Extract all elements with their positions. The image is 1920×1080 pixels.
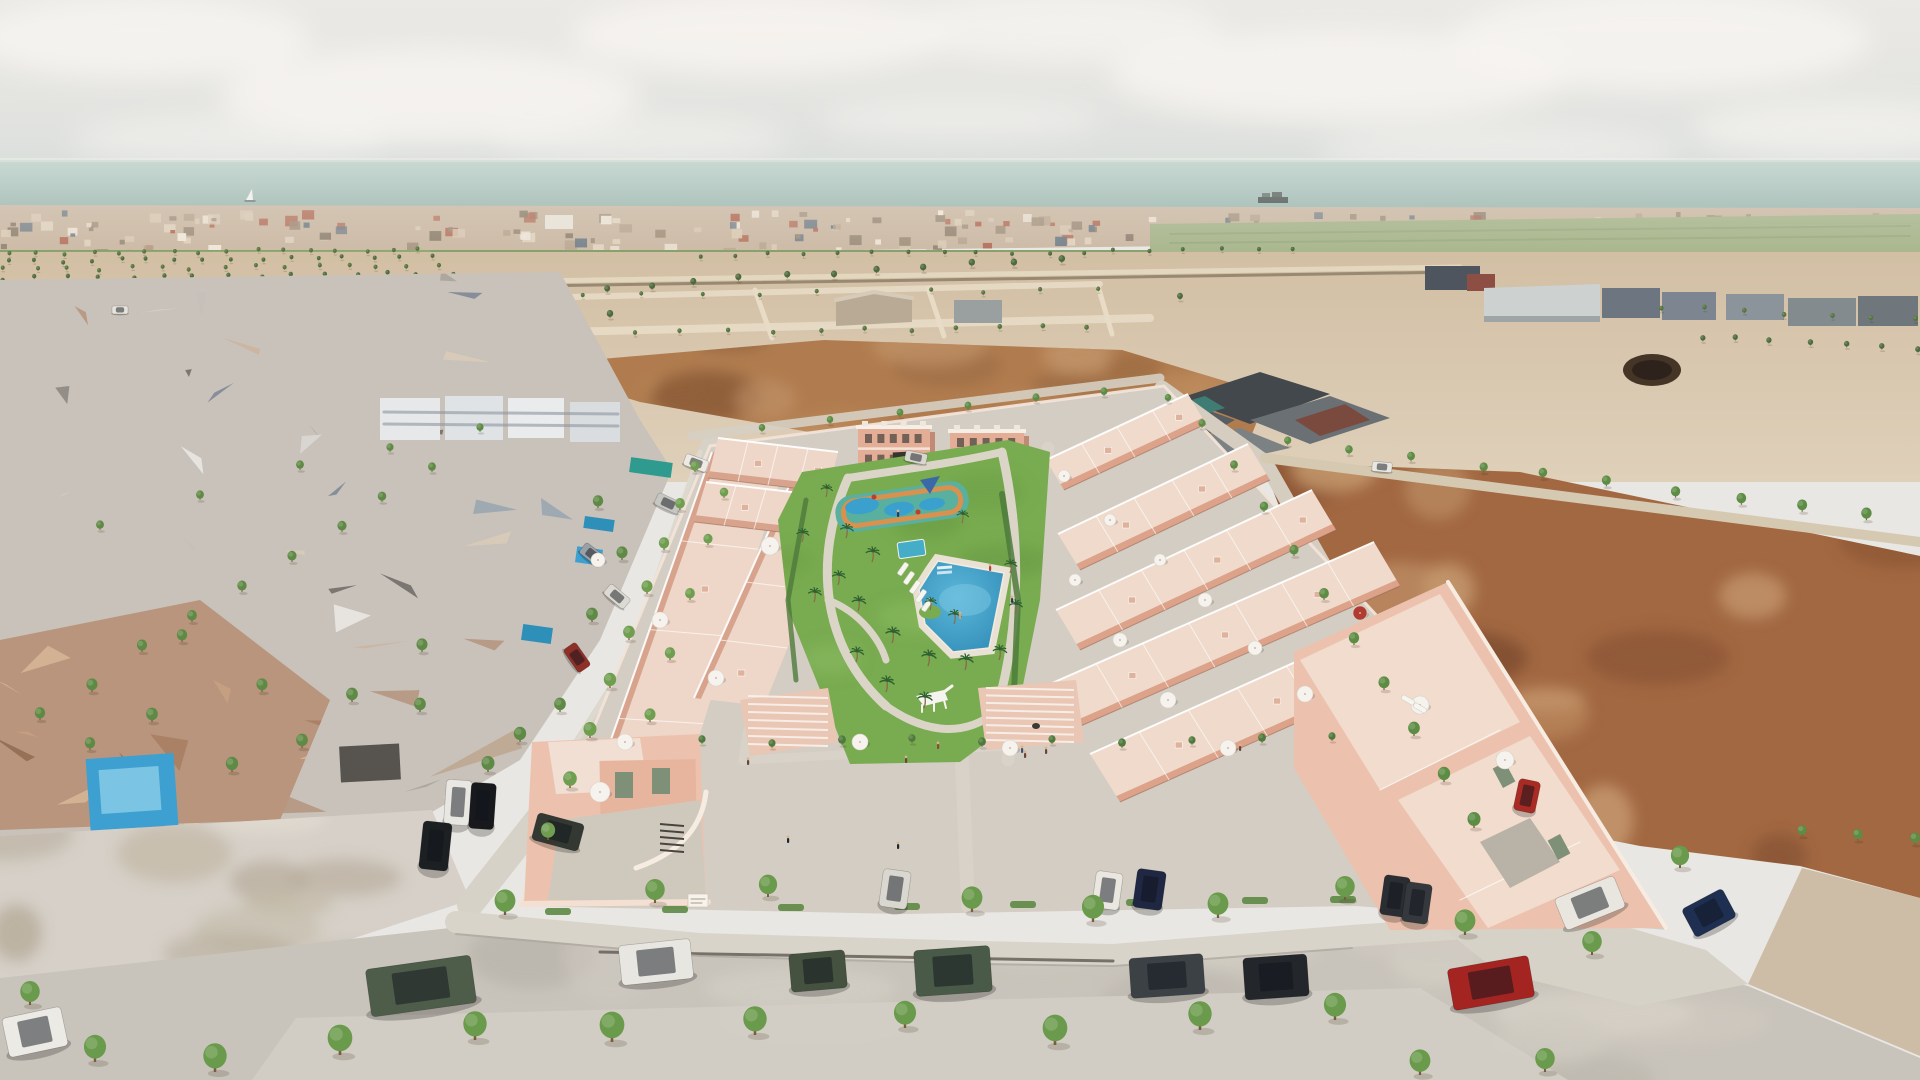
gray-warehouse	[954, 300, 1002, 323]
window-panel	[652, 768, 670, 794]
car	[910, 945, 997, 1005]
kids-pool	[897, 539, 926, 559]
entrance-plaque	[688, 894, 708, 907]
car	[1239, 954, 1313, 1008]
play-equipment	[872, 495, 877, 500]
corner-front-wall	[524, 902, 708, 904]
warehouse-gray-5	[1858, 296, 1918, 326]
warehouse-side	[1484, 316, 1600, 322]
car	[1125, 953, 1209, 1005]
existing-pool-shallow	[99, 766, 162, 814]
apartment-block-existing-4	[570, 402, 620, 442]
warehouse-gray-4	[1788, 298, 1856, 326]
bbq-grill	[1032, 723, 1040, 729]
window-band	[384, 412, 618, 414]
pool-highlight	[939, 584, 991, 616]
window-panel	[615, 772, 633, 798]
apartment-block-existing-2	[445, 396, 503, 440]
warehouse-gray-1	[1602, 288, 1660, 318]
car	[786, 949, 851, 999]
aerial-render-scene	[0, 0, 1920, 1080]
apartment-block-existing-1	[380, 398, 440, 440]
car	[111, 306, 129, 315]
car	[467, 782, 498, 838]
aerial-render-viewport: Bird's-eye 3D visualization: rows of sal…	[0, 0, 1920, 1080]
window-band	[384, 424, 618, 426]
warehouse-gray-3	[1726, 294, 1784, 320]
apartment-block-existing-3	[508, 398, 564, 438]
play-equipment	[916, 510, 921, 515]
dark-shed	[339, 743, 401, 782]
round-tank-inner	[1632, 360, 1672, 380]
sky-layer	[0, 0, 1920, 176]
warehouse-gray-2	[1662, 292, 1716, 320]
car	[1679, 887, 1741, 944]
entrance-driveway	[962, 760, 968, 906]
